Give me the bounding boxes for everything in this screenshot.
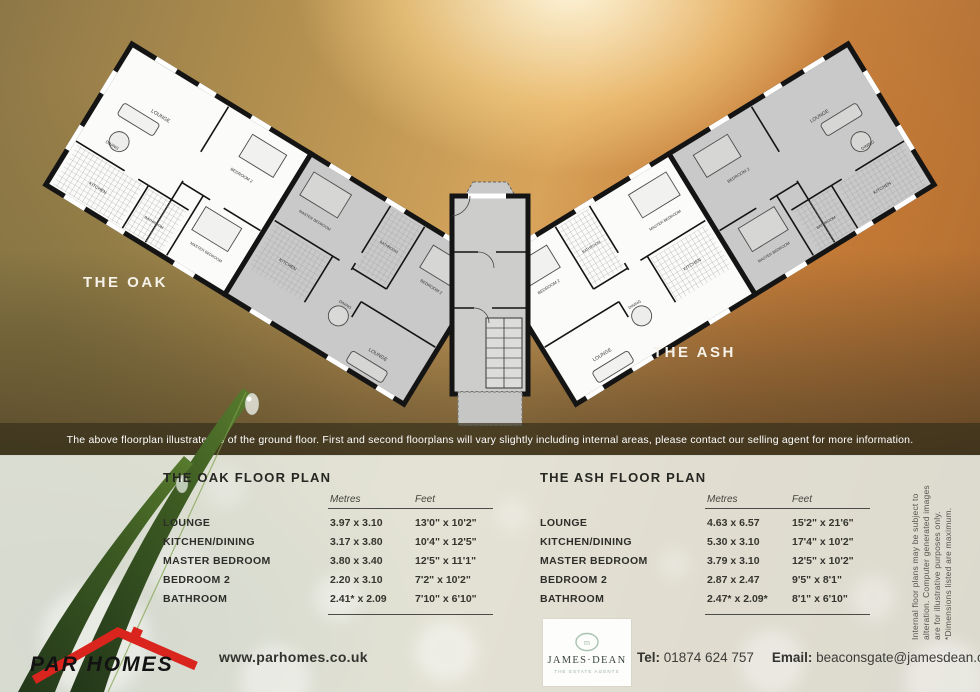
row-label: BEDROOM 2 bbox=[163, 574, 230, 586]
row-metres: 3.80 x 3.40 bbox=[330, 555, 383, 567]
row-metres: 2.47* x 2.09* bbox=[707, 593, 768, 605]
legal-line: alteration. Computer generated images bbox=[921, 472, 932, 640]
table-rule bbox=[705, 614, 870, 615]
row-feet: 8'1" x 6'10" bbox=[792, 593, 848, 605]
email-address: beaconsgate@jamesdean.co.uk bbox=[816, 650, 980, 665]
row-label: BATHROOM bbox=[163, 593, 227, 605]
legal-line: are for illustrative purposes only. bbox=[932, 472, 943, 640]
metres-column-header: Metres bbox=[330, 494, 361, 505]
row-label: MASTER BEDROOM bbox=[540, 555, 648, 567]
table-row: BATHROOM 2.47* x 2.09* 8'1" x 6'10" bbox=[540, 593, 875, 612]
table-row: LOUNGE 4.63 x 6.57 15'2" x 21'6" bbox=[540, 517, 875, 536]
table-row: MASTER BEDROOM 3.80 x 3.40 12'5" x 11'1" bbox=[163, 555, 498, 574]
row-metres: 2.41* x 2.09 bbox=[330, 593, 387, 605]
row-feet: 13'0" x 10'2" bbox=[415, 517, 477, 529]
row-metres: 3.97 x 3.10 bbox=[330, 517, 383, 529]
row-metres: 2.87 x 2.47 bbox=[707, 574, 760, 586]
agent-name: JAMES·DEAN bbox=[548, 655, 627, 666]
feet-column-header: Feet bbox=[792, 494, 812, 505]
row-label: KITCHEN/DINING bbox=[540, 536, 632, 548]
row-feet: 12'5" x 11'1" bbox=[415, 555, 476, 567]
telephone: Tel: 01874 624 757 bbox=[637, 650, 754, 665]
table-row: BATHROOM 2.41* x 2.09 7'10" x 6'10" bbox=[163, 593, 498, 612]
vertical-legal-note: Internal floor plans may be subject to a… bbox=[910, 472, 954, 640]
row-label: LOUNGE bbox=[163, 517, 210, 529]
brochure-page: LOUNGE DINING KITCHEN BATHROOM MASTER BE… bbox=[0, 0, 980, 692]
table-row: KITCHEN/DINING 3.17 x 3.80 10'4" x 12'5" bbox=[163, 536, 498, 555]
table-row: BEDROOM 2 2.20 x 3.10 7'2" x 10'2" bbox=[163, 574, 498, 593]
row-metres: 5.30 x 3.10 bbox=[707, 536, 760, 548]
row-feet: 7'10" x 6'10" bbox=[415, 593, 477, 605]
table-row: MASTER BEDROOM 3.79 x 3.10 12'5" x 10'2" bbox=[540, 555, 875, 574]
row-label: MASTER BEDROOM bbox=[163, 555, 271, 567]
legal-line: *Dimensions listed are maximum. bbox=[943, 472, 954, 640]
contact-info: Tel: 01874 624 757 Email: beaconsgate@ja… bbox=[637, 650, 980, 665]
row-feet: 7'2" x 10'2" bbox=[415, 574, 471, 586]
table-rule bbox=[328, 508, 493, 509]
row-label: KITCHEN/DINING bbox=[163, 536, 255, 548]
crest-icon: m bbox=[574, 632, 600, 652]
row-label: BEDROOM 2 bbox=[540, 574, 607, 586]
row-label: LOUNGE bbox=[540, 517, 587, 529]
row-feet: 15'2" x 21'6" bbox=[792, 517, 854, 529]
agent-tagline: THE ESTATE AGENTS bbox=[554, 669, 619, 674]
svg-text:m: m bbox=[584, 638, 591, 647]
dew-drop bbox=[245, 393, 259, 415]
ash-table-title: THE ASH FLOOR PLAN bbox=[540, 470, 875, 485]
row-metres: 3.17 x 3.80 bbox=[330, 536, 383, 548]
table-row: BEDROOM 2 2.87 x 2.47 9'5" x 8'1" bbox=[540, 574, 875, 593]
row-feet: 12'5" x 10'2" bbox=[792, 555, 854, 567]
table-row: KITCHEN/DINING 5.30 x 3.10 17'4" x 10'2" bbox=[540, 536, 875, 555]
feet-column-header: Feet bbox=[415, 494, 435, 505]
row-metres: 2.20 x 3.10 bbox=[330, 574, 383, 586]
par-homes-logo: PAR HOMES bbox=[28, 622, 213, 684]
legal-line: Internal floor plans may be subject to bbox=[910, 472, 921, 640]
table-row: LOUNGE 3.97 x 3.10 13'0" x 10'2" bbox=[163, 517, 498, 536]
website-url: www.parhomes.co.uk bbox=[219, 649, 368, 665]
row-metres: 3.79 x 3.10 bbox=[707, 555, 760, 567]
row-metres: 4.63 x 6.57 bbox=[707, 517, 760, 529]
tel-label: Tel: bbox=[637, 650, 660, 665]
email-label: Email: bbox=[772, 650, 813, 665]
table-rule bbox=[705, 508, 870, 509]
row-label: BATHROOM bbox=[540, 593, 604, 605]
oak-floor-plan-table: THE OAK FLOOR PLAN Metres Feet LOUNGE 3.… bbox=[163, 470, 498, 485]
tel-number: 01874 624 757 bbox=[664, 650, 754, 665]
row-feet: 9'5" x 8'1" bbox=[792, 574, 842, 586]
row-feet: 10'4" x 12'5" bbox=[415, 536, 477, 548]
brand-text: PAR HOMES bbox=[30, 653, 174, 676]
ash-floor-plan-table: THE ASH FLOOR PLAN Metres Feet LOUNGE 4.… bbox=[540, 470, 875, 485]
row-feet: 17'4" x 10'2" bbox=[792, 536, 854, 548]
metres-column-header: Metres bbox=[707, 494, 738, 505]
dew-highlight bbox=[247, 397, 252, 402]
table-rule bbox=[328, 614, 493, 615]
email: Email: beaconsgate@jamesdean.co.uk bbox=[772, 650, 980, 665]
oak-table-title: THE OAK FLOOR PLAN bbox=[163, 470, 498, 485]
james-dean-logo: m JAMES·DEAN THE ESTATE AGENTS bbox=[543, 619, 631, 686]
